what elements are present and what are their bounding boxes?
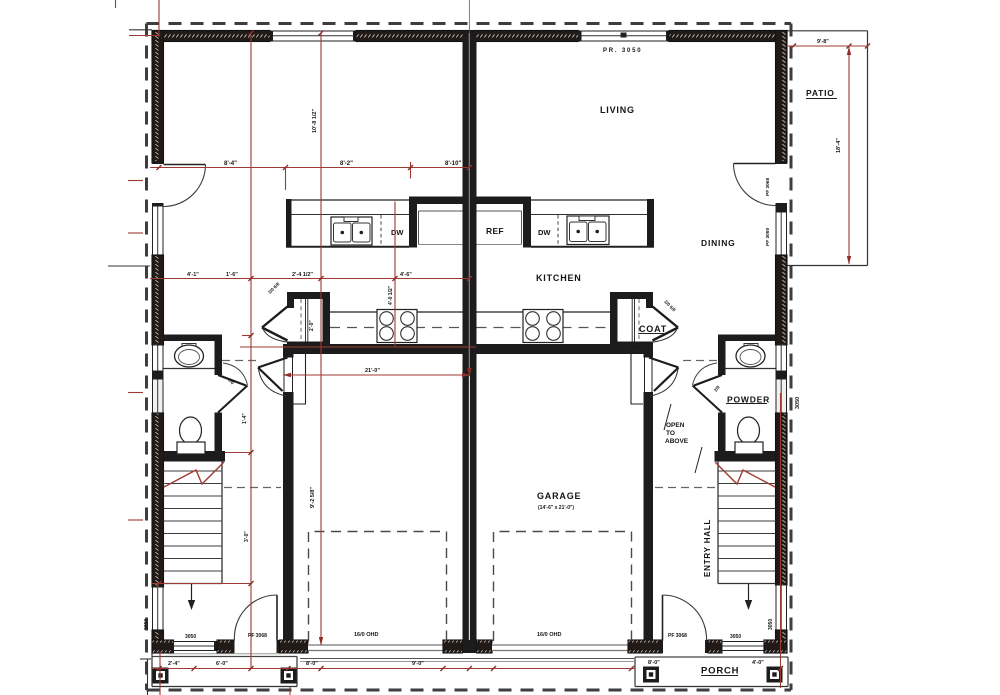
svg-text:21'-0": 21'-0": [365, 368, 380, 374]
svg-text:10'-8 1/2": 10'-8 1/2": [312, 109, 318, 133]
svg-text:6'-0": 6'-0": [216, 661, 228, 667]
svg-text:1'-4": 1'-4": [242, 413, 248, 424]
svg-text:16/0 OHD: 16/0 OHD: [537, 632, 561, 638]
svg-text:LIVING: LIVING: [600, 105, 635, 115]
svg-text:PORCH: PORCH: [701, 666, 739, 677]
svg-text:3050: 3050: [730, 634, 741, 640]
svg-text:4'-1": 4'-1": [187, 272, 199, 278]
svg-text:OPEN: OPEN: [666, 422, 685, 429]
svg-text:PATIO: PATIO: [806, 88, 835, 98]
svg-text:2'-0": 2'-0": [309, 320, 315, 331]
svg-text:2'-4 1/2": 2'-4 1/2": [292, 272, 313, 278]
svg-text:9'-2 5/8": 9'-2 5/8": [310, 487, 316, 508]
svg-text:GARAGE: GARAGE: [537, 491, 581, 501]
svg-text:3050: 3050: [768, 619, 774, 630]
svg-text:PF 3050: PF 3050: [765, 228, 771, 246]
svg-text:KITCHEN: KITCHEN: [536, 273, 582, 283]
svg-text:3050: 3050: [144, 619, 150, 630]
svg-text:PF 3068: PF 3068: [765, 178, 771, 196]
svg-text:DINING: DINING: [701, 238, 736, 248]
svg-text:4'-6": 4'-6": [400, 272, 412, 278]
svg-text:COAT: COAT: [639, 324, 667, 334]
svg-text:PF 3068: PF 3068: [668, 633, 687, 639]
svg-text:8'-2": 8'-2": [340, 161, 353, 167]
svg-text:3'-0": 3'-0": [244, 531, 250, 542]
svg-text:9'-0": 9'-0": [412, 661, 424, 667]
svg-text:4'-0": 4'-0": [752, 660, 764, 666]
svg-text:1'-6": 1'-6": [226, 272, 238, 278]
svg-text:4'-0 1/2": 4'-0 1/2": [388, 285, 394, 305]
svg-text:PF 3068: PF 3068: [248, 633, 267, 639]
svg-text:DW: DW: [391, 228, 404, 237]
svg-text:ABOVE: ABOVE: [665, 438, 689, 445]
svg-text:3050: 3050: [795, 397, 801, 409]
svg-text:REF: REF: [486, 226, 504, 236]
svg-text:DW: DW: [538, 228, 551, 237]
svg-text:TO: TO: [666, 430, 675, 437]
svg-text:3050: 3050: [185, 634, 196, 640]
svg-text:9'-8": 9'-8": [817, 39, 829, 45]
svg-text:8'-0": 8'-0": [648, 660, 660, 666]
svg-text:18'-4": 18'-4": [836, 138, 842, 153]
svg-text:8'-10": 8'-10": [445, 161, 461, 167]
svg-text:8'-4": 8'-4": [224, 161, 237, 167]
svg-text:PR. 3050: PR. 3050: [603, 48, 642, 54]
svg-text:16/0 OHD: 16/0 OHD: [354, 632, 378, 638]
svg-text:8'-0": 8'-0": [306, 661, 318, 667]
svg-text:ENTRY HALL: ENTRY HALL: [703, 519, 712, 577]
svg-text:2'-4": 2'-4": [168, 661, 180, 667]
svg-text:(14'-6" x 21'-0"): (14'-6" x 21'-0"): [538, 505, 574, 511]
